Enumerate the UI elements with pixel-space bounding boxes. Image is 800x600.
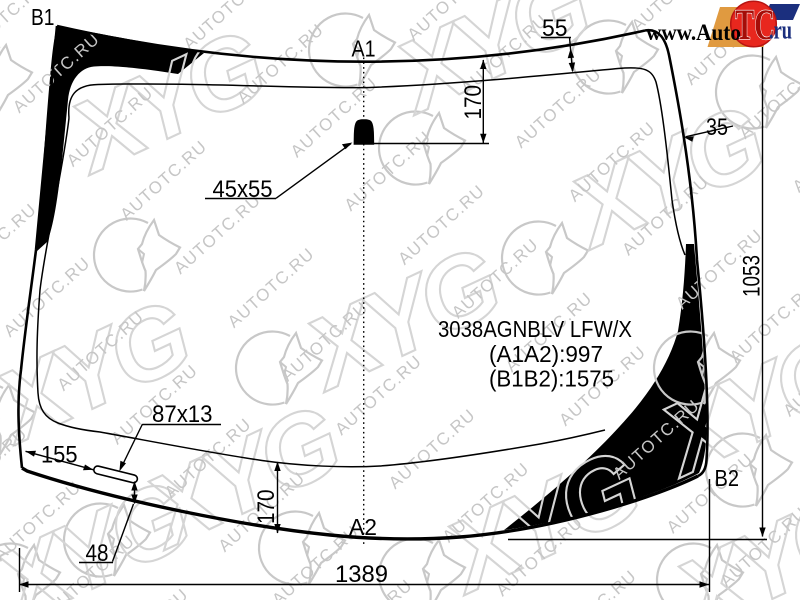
svg-text:3038AGNBLV LFW/X: 3038AGNBLV LFW/X	[438, 316, 632, 342]
svg-text:35: 35	[706, 114, 728, 141]
svg-text:87x13: 87x13	[152, 401, 213, 428]
svg-text:155: 155	[41, 442, 78, 469]
svg-text:A2: A2	[349, 514, 377, 540]
svg-text:.ru: .ru	[769, 16, 792, 45]
svg-text:B2: B2	[715, 465, 740, 491]
svg-text:170: 170	[253, 490, 280, 525]
svg-text:45x55: 45x55	[213, 176, 273, 203]
svg-text:B1: B1	[31, 4, 55, 30]
svg-text:1053: 1053	[739, 255, 766, 297]
svg-text:55: 55	[542, 15, 568, 42]
svg-text:A1: A1	[352, 36, 376, 62]
svg-text:170: 170	[460, 85, 487, 120]
svg-text:www.Auto: www.Auto	[646, 20, 741, 45]
svg-text:(A1A2):997: (A1A2):997	[489, 341, 603, 367]
svg-text:48: 48	[86, 540, 109, 567]
svg-text:(B1B2):1575: (B1B2):1575	[489, 366, 614, 392]
svg-text:1389: 1389	[335, 561, 388, 588]
